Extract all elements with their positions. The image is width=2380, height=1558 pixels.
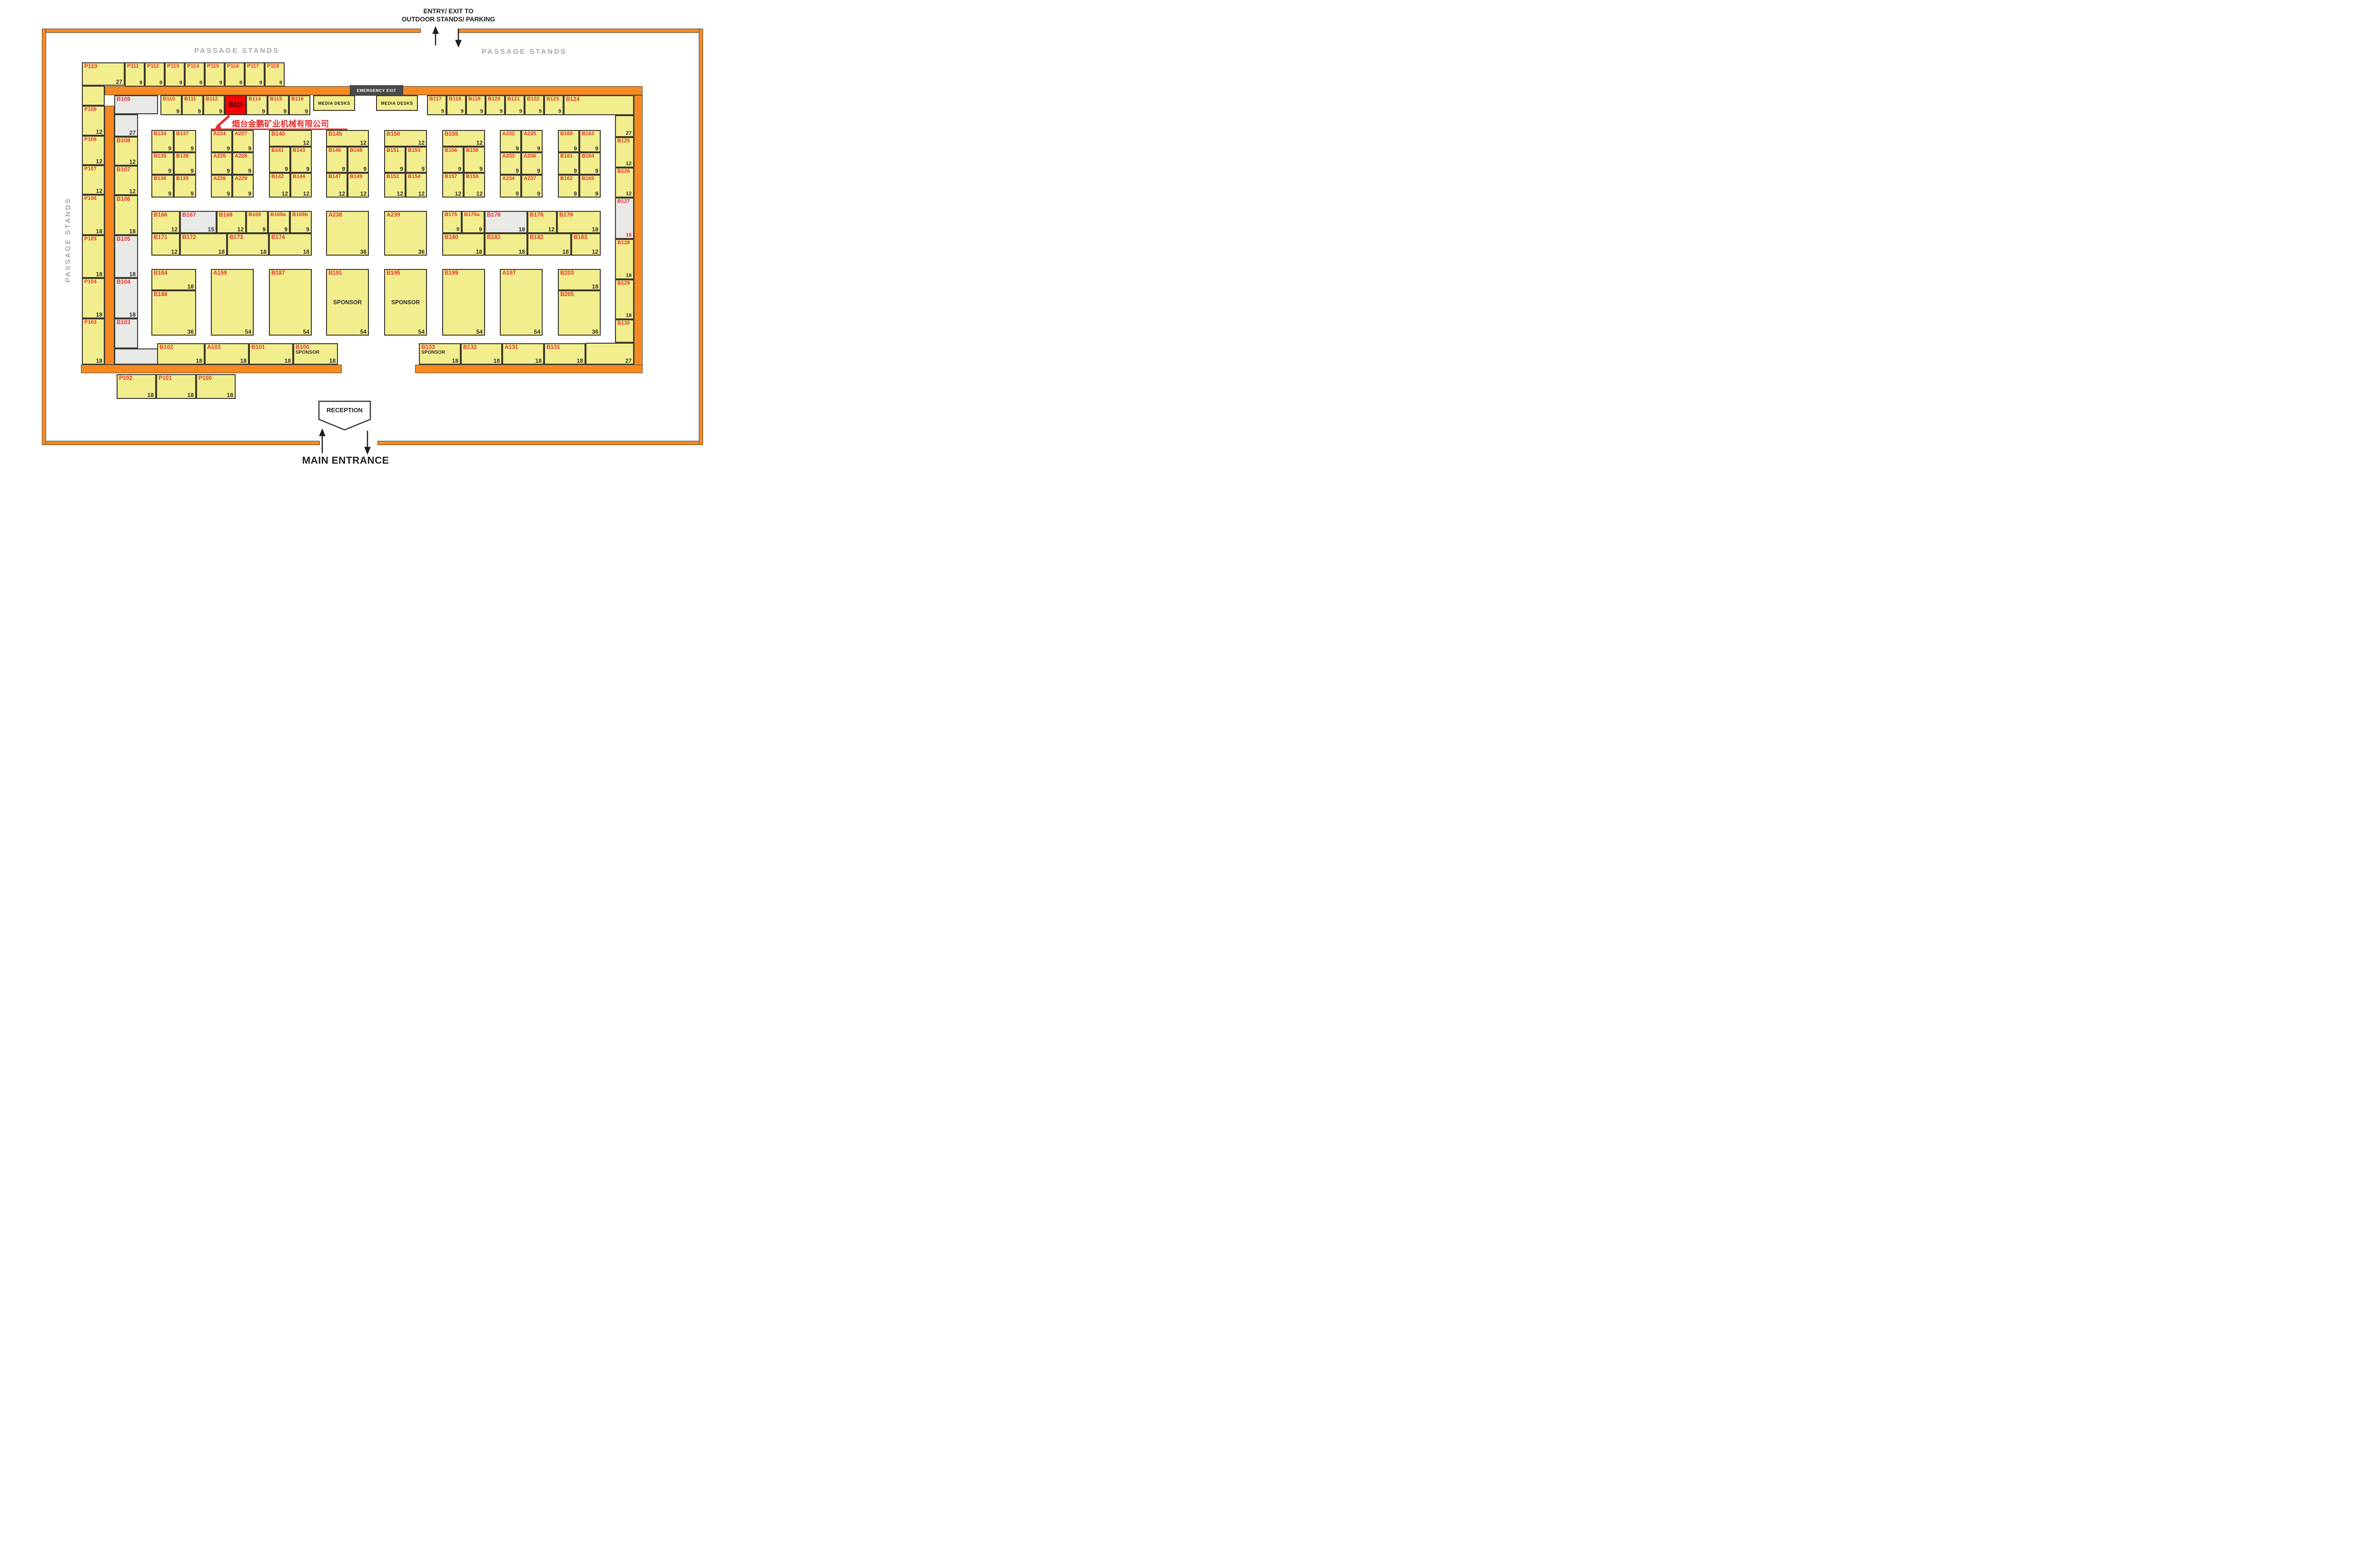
wall-segment bbox=[42, 29, 421, 33]
booth-id: A238 bbox=[328, 212, 342, 218]
booth-b124[interactable]: 27 bbox=[615, 115, 634, 137]
booth-a235[interactable]: A2359 bbox=[521, 130, 543, 152]
booth-size-sqm: 9 bbox=[500, 109, 503, 115]
booth-b130[interactable]: B130 bbox=[615, 319, 634, 343]
booth-b191[interactable]: B191SPONSOR54 bbox=[326, 269, 369, 336]
booth-id: B128 bbox=[617, 240, 630, 246]
booth-id: B125 bbox=[617, 138, 630, 144]
booth-size-sqm: 18 bbox=[519, 226, 525, 233]
booth-a229[interactable]: A2299 bbox=[232, 175, 254, 198]
booth-size-sqm: 27 bbox=[116, 79, 122, 85]
main-entrance-label: MAIN ENTRANCE bbox=[284, 455, 407, 466]
booth-size-sqm: 27 bbox=[626, 130, 632, 137]
booth-size-sqm: 9 bbox=[400, 166, 403, 172]
booth-id: B162 bbox=[560, 176, 573, 182]
booth-id: B153 bbox=[408, 148, 420, 154]
booth-id: B191 bbox=[328, 270, 342, 277]
booth-b109[interactable]: B109 bbox=[114, 95, 158, 114]
booth-b168[interactable]: B16812 bbox=[217, 211, 246, 233]
booth-size-sqm: 9 bbox=[595, 168, 598, 174]
booth-a233[interactable]: A2339 bbox=[500, 152, 521, 175]
booth-id: A239 bbox=[387, 212, 400, 218]
booth-size-sqm: 18 bbox=[96, 357, 102, 364]
booth-b112[interactable]: B1129 bbox=[203, 95, 225, 115]
booth-p108[interactable]: P10812 bbox=[82, 136, 105, 165]
booth-size-sqm: 9 bbox=[516, 168, 519, 174]
booth-id: P101 bbox=[159, 375, 172, 382]
booth-b160[interactable]: B1609 bbox=[558, 130, 579, 152]
booth-b154[interactable]: B15412 bbox=[406, 173, 427, 198]
booth-b150[interactable]: B15012 bbox=[384, 130, 427, 147]
wall-segment bbox=[105, 106, 114, 365]
booth-p114[interactable]: P1149 bbox=[185, 62, 205, 87]
booth-size-sqm: 12 bbox=[282, 190, 288, 197]
booth-b119[interactable]: B1199 bbox=[466, 95, 486, 115]
booth-id: P115 bbox=[207, 63, 219, 69]
booth-size-sqm: 18 bbox=[188, 283, 194, 290]
booth-b166[interactable]: B16612 bbox=[151, 211, 180, 233]
booth-size-sqm: 18 bbox=[196, 357, 202, 364]
booth-a232[interactable]: A2329 bbox=[500, 130, 521, 152]
booth-id: B147 bbox=[328, 174, 341, 180]
booth-size-sqm: 12 bbox=[418, 139, 425, 146]
booth-b187[interactable]: B18754 bbox=[269, 269, 312, 336]
booth-id: B129 bbox=[617, 280, 630, 287]
booth-a228[interactable]: A2289 bbox=[232, 152, 254, 175]
highlighted-booth-label: B113 bbox=[226, 101, 245, 109]
booth-size-sqm: 9 bbox=[227, 190, 230, 197]
booth-b129[interactable]: B12918 bbox=[615, 279, 634, 319]
booth-size-sqm: 9 bbox=[198, 108, 201, 115]
booth-b159[interactable]: B15912 bbox=[464, 173, 485, 198]
wall-segment bbox=[42, 441, 320, 445]
booth-b186[interactable]: B18636 bbox=[151, 290, 196, 336]
booth-id: A234 bbox=[502, 176, 515, 182]
booth-p101[interactable]: P10118 bbox=[156, 374, 196, 399]
booth-id: A102 bbox=[207, 344, 221, 351]
booth-b132[interactable]: B13218 bbox=[461, 343, 502, 365]
booth-b110[interactable]: B1109 bbox=[160, 95, 182, 115]
booth-b167[interactable]: B16715 bbox=[180, 211, 217, 233]
wall-segment bbox=[458, 29, 703, 33]
booth-size-sqm: 9 bbox=[595, 190, 598, 197]
booth-a236[interactable]: A2369 bbox=[521, 152, 543, 175]
booth-size-sqm: 9 bbox=[516, 145, 519, 152]
booth-id: B151 bbox=[387, 148, 399, 154]
booth-id: P102 bbox=[119, 375, 132, 382]
booth-a197[interactable]: A19754 bbox=[500, 269, 543, 336]
booth-b122[interactable]: B1229 bbox=[525, 95, 544, 115]
booth-size-sqm: 9 bbox=[306, 226, 309, 233]
booth-id: B184 bbox=[154, 270, 168, 277]
booth-size-sqm: 9 bbox=[480, 109, 483, 115]
booth-id: A237 bbox=[524, 176, 536, 182]
booth-p118[interactable]: P1189 bbox=[265, 62, 285, 87]
booth-id: B145 bbox=[328, 131, 342, 138]
booth-size-sqm: 12 bbox=[238, 226, 244, 233]
booth-id: A235 bbox=[524, 131, 536, 137]
booth-p115[interactable]: P1159 bbox=[205, 62, 225, 87]
booth-id: B199 bbox=[445, 270, 458, 277]
booth-p107[interactable]: P10712 bbox=[82, 165, 105, 195]
reception-booth[interactable] bbox=[319, 401, 370, 430]
booth-b203[interactable]: B20318 bbox=[558, 269, 601, 290]
booth-b137[interactable]: B1379 bbox=[174, 130, 196, 152]
booth-b116[interactable]: B1169 bbox=[289, 95, 310, 115]
booth-b138[interactable]: B1389 bbox=[174, 152, 196, 175]
booth-size-sqm: 18 bbox=[129, 271, 136, 278]
booth-size-sqm: 9 bbox=[283, 108, 287, 115]
booth-size-sqm: 12 bbox=[171, 226, 178, 233]
booth-b113[interactable]: B113 bbox=[225, 95, 246, 115]
booth-size-sqm: 9 bbox=[306, 166, 309, 172]
booth-a224[interactable]: A2249 bbox=[211, 130, 232, 152]
booth-size-sqm: 12 bbox=[96, 129, 102, 135]
booth-b136[interactable]: B1369 bbox=[151, 175, 174, 198]
booth-b100[interactable]: B100SPONSOR18 bbox=[293, 343, 338, 365]
booth-b142[interactable]: B14212 bbox=[269, 173, 290, 198]
booth-size-sqm: 18 bbox=[260, 248, 267, 255]
booth-id: B114 bbox=[248, 96, 261, 102]
booth-b103[interactable]: B103 bbox=[114, 318, 138, 348]
booth-id: B160 bbox=[560, 131, 573, 137]
booth-size-sqm: 12 bbox=[171, 248, 178, 255]
booth-b107[interactable]: B10712 bbox=[114, 166, 138, 195]
booth-b173[interactable]: B17318 bbox=[227, 233, 269, 256]
booth-id: A226 bbox=[213, 176, 226, 182]
booth-id: B167 bbox=[182, 212, 196, 218]
booth-b157[interactable]: B15712 bbox=[442, 173, 464, 198]
booth-p113[interactable]: P1139 bbox=[165, 62, 185, 87]
entry-exit-line1: ENTRY/ EXIT TO bbox=[367, 8, 529, 16]
booth-id: P103 bbox=[84, 319, 97, 326]
booth-a234[interactable]: A2349 bbox=[500, 175, 521, 198]
booth-id: B110 bbox=[163, 96, 175, 102]
booth-b146[interactable]: B1469 bbox=[326, 147, 347, 173]
booth-id: P105 bbox=[84, 236, 97, 242]
booth-size-sqm: 9 bbox=[262, 108, 265, 115]
booth-size-sqm: 12 bbox=[96, 188, 102, 194]
booth-id: B179 bbox=[559, 212, 573, 218]
booth-size-sqm: 12 bbox=[303, 139, 309, 146]
booth-b127[interactable]: B12718 bbox=[615, 198, 634, 239]
booth-size-sqm: 9 bbox=[537, 145, 540, 152]
booth-b134[interactable]: B1349 bbox=[151, 130, 174, 152]
booth-b126[interactable]: B12612 bbox=[615, 168, 634, 198]
booth-b121[interactable]: B1219 bbox=[505, 95, 525, 115]
booth-a131[interactable]: A13118 bbox=[502, 343, 544, 365]
booth-id: P112 bbox=[147, 63, 159, 69]
booth-id: B169b bbox=[292, 212, 308, 218]
booth-size-sqm: 12 bbox=[129, 159, 136, 165]
booth-b183[interactable]: B18312 bbox=[571, 233, 601, 256]
booth-id: B137 bbox=[176, 131, 188, 137]
booth-b131[interactable]: B13118 bbox=[544, 343, 585, 365]
booth-b139[interactable]: B1399 bbox=[174, 175, 196, 198]
booth-id: P118 bbox=[267, 63, 279, 69]
booth-size-sqm: 18 bbox=[519, 248, 525, 255]
booth-b182[interactable]: B18218 bbox=[527, 233, 571, 256]
booth-b176[interactable]: B17618 bbox=[485, 211, 527, 233]
booth-p109[interactable]: P10912 bbox=[82, 106, 105, 136]
booth-size-sqm: 18 bbox=[96, 311, 102, 318]
booth-b128[interactable]: B12818 bbox=[615, 239, 634, 279]
booth-b102[interactable]: B10218 bbox=[157, 343, 205, 365]
booth-b118[interactable]: B1189 bbox=[446, 95, 466, 115]
booth-id: B117 bbox=[429, 96, 442, 102]
booth-size-sqm: 18 bbox=[476, 248, 482, 255]
booth-id: P117 bbox=[247, 63, 259, 69]
booth-a225[interactable]: A2259 bbox=[211, 152, 232, 175]
booth-a159[interactable]: A15954 bbox=[211, 269, 254, 336]
booth-size-sqm: 36 bbox=[418, 248, 425, 255]
booth-b147[interactable]: B14712 bbox=[326, 173, 347, 198]
booth-b155[interactable]: B15512 bbox=[442, 130, 485, 147]
booth-id: B181 bbox=[487, 234, 501, 241]
booth-id: P104 bbox=[84, 279, 97, 285]
booth-b171[interactable]: B17112 bbox=[151, 233, 180, 256]
booth-b205[interactable]: B20536 bbox=[558, 290, 601, 336]
booth-a227[interactable]: A2279 bbox=[232, 130, 254, 152]
booth-b169[interactable]: B1699 bbox=[246, 211, 268, 233]
booth-size-sqm: 12 bbox=[360, 190, 367, 197]
booth-size-sqm: 54 bbox=[303, 328, 309, 335]
booth-size-sqm: 9 bbox=[574, 145, 577, 152]
booth-a237[interactable]: A2379 bbox=[521, 175, 543, 198]
booth-p103[interactable]: P10318 bbox=[82, 318, 105, 365]
booth-size-sqm: 12 bbox=[455, 190, 461, 197]
booth-size-sqm: 9 bbox=[595, 145, 598, 152]
booth-size-sqm: 12 bbox=[418, 190, 425, 197]
booth-size-sqm: 9 bbox=[159, 80, 162, 86]
booth-id: A225 bbox=[213, 153, 226, 159]
media-desk[interactable]: MEDIA DESKS bbox=[376, 95, 418, 111]
booth-b174[interactable]: B17418 bbox=[269, 233, 312, 256]
booth-a226[interactable]: A2269 bbox=[211, 175, 232, 198]
booth-b111[interactable]: B1119 bbox=[182, 95, 203, 115]
booth-id: B107 bbox=[117, 167, 130, 173]
booth-b144[interactable]: B14412 bbox=[290, 173, 312, 198]
booth-b151[interactable]: B1519 bbox=[384, 147, 406, 173]
booth-b153[interactable]: B1539 bbox=[406, 147, 427, 173]
booth-size-sqm: 18 bbox=[227, 392, 233, 398]
booth-id: B126 bbox=[617, 169, 630, 175]
booth-b149[interactable]: B14912 bbox=[347, 173, 369, 198]
booth-b158[interactable]: B1589 bbox=[464, 147, 485, 173]
booth-b117[interactable]: B1179 bbox=[427, 95, 446, 115]
booth-p110[interactable]: P11027 bbox=[82, 62, 125, 86]
booth-b109[interactable]: 27 bbox=[114, 114, 138, 137]
booth-b141[interactable]: B1419 bbox=[269, 147, 290, 173]
booth-size-sqm: 9 bbox=[179, 80, 182, 86]
booth-id: B166 bbox=[154, 212, 168, 218]
booth-size-sqm: 9 bbox=[168, 190, 171, 197]
booth-size-sqm: 18 bbox=[626, 232, 632, 238]
booth-size-sqm: 9 bbox=[558, 109, 561, 115]
booth-size-sqm: 9 bbox=[199, 80, 202, 86]
booth-size-sqm: 9 bbox=[248, 168, 251, 174]
wall-segment bbox=[634, 95, 643, 373]
booth-b120[interactable]: B1209 bbox=[486, 95, 505, 115]
booth-size-sqm: 9 bbox=[479, 226, 482, 233]
booth-size-sqm: 36 bbox=[360, 248, 367, 255]
booth-b156[interactable]: B1569 bbox=[442, 147, 464, 173]
booth-id: B109 bbox=[117, 96, 130, 103]
booth-id: B180 bbox=[445, 234, 458, 241]
booth-p112[interactable]: P1129 bbox=[145, 62, 165, 87]
booth-p106[interactable]: P10618 bbox=[82, 195, 105, 235]
booth-size-sqm: 18 bbox=[96, 228, 102, 235]
booth-size-sqm: 12 bbox=[397, 190, 403, 197]
booth-p117[interactable]: P1179 bbox=[245, 62, 265, 87]
booth-b169b[interactable]: B169b9 bbox=[290, 211, 312, 233]
booth-b115[interactable]: B1159 bbox=[268, 95, 289, 115]
booth-size-sqm: 12 bbox=[476, 190, 483, 197]
wall-segment bbox=[699, 29, 703, 445]
booth-size-sqm: 18 bbox=[96, 271, 102, 278]
booth-id: B169a bbox=[270, 212, 286, 218]
booth-id: B108 bbox=[117, 138, 130, 144]
booth-b184[interactable]: B18418 bbox=[151, 269, 196, 290]
booth-b143[interactable]: B1439 bbox=[290, 147, 312, 173]
booth-size-sqm: 9 bbox=[342, 166, 345, 172]
booth-id: P109 bbox=[84, 107, 97, 113]
booth-b180[interactable]: B18018 bbox=[442, 233, 485, 256]
booth-id: A159 bbox=[213, 270, 227, 277]
booth-id: A227 bbox=[235, 131, 247, 137]
booth-b161[interactable]: B1619 bbox=[558, 152, 579, 175]
booth-size-sqm: 18 bbox=[218, 248, 225, 255]
booth-id: B148 bbox=[350, 148, 362, 154]
booth-size-sqm: 9 bbox=[479, 166, 483, 172]
media-desk[interactable]: MEDIA DESKS bbox=[313, 95, 355, 111]
booth-id: B112 bbox=[206, 96, 218, 102]
booth-size-sqm: 18 bbox=[129, 311, 136, 318]
booth-b199[interactable]: B19954 bbox=[442, 269, 485, 336]
booth-b181[interactable]: B18118 bbox=[485, 233, 527, 256]
booth-b140[interactable]: B14012 bbox=[269, 130, 312, 147]
booth-b172[interactable]: B17218 bbox=[180, 233, 227, 256]
booth-id: B159 bbox=[466, 174, 478, 180]
booth-size-sqm: 54 bbox=[245, 328, 251, 335]
booth-id: P114 bbox=[187, 63, 199, 69]
booth-size-sqm: 9 bbox=[176, 108, 179, 115]
booth-p100[interactable]: P10018 bbox=[196, 374, 236, 399]
booth-id: P106 bbox=[84, 196, 97, 202]
booth-a239[interactable]: A23936 bbox=[384, 211, 427, 256]
booth-b105[interactable]: B10518 bbox=[114, 235, 138, 278]
booth-id: B173 bbox=[229, 234, 243, 241]
booth-b163[interactable]: B1639 bbox=[579, 130, 601, 152]
booth-id: B136 bbox=[154, 176, 166, 182]
booth-a238[interactable]: A23836 bbox=[326, 211, 369, 256]
booth-p102[interactable]: P10218 bbox=[117, 374, 156, 399]
booth-p116[interactable]: P1169 bbox=[225, 62, 245, 87]
booth-size-sqm: 9 bbox=[516, 190, 519, 197]
booth-b175[interactable]: B1759 bbox=[442, 211, 462, 233]
booth-b164[interactable]: B1649 bbox=[579, 152, 601, 175]
booth-size-sqm: 12 bbox=[96, 158, 102, 165]
media-desk-label: MEDIA DESKS bbox=[314, 101, 354, 106]
booth-size-sqm: 12 bbox=[476, 139, 483, 146]
booth-p110[interactable] bbox=[82, 86, 105, 106]
booth-size-sqm: 9 bbox=[539, 109, 542, 115]
booth-b108[interactable]: B10812 bbox=[114, 137, 138, 166]
booth-id: B121 bbox=[507, 96, 520, 102]
booth-id: A232 bbox=[502, 131, 515, 137]
booth-id: B168 bbox=[219, 212, 233, 218]
booth-size-sqm: 9 bbox=[190, 145, 194, 152]
booth-b123[interactable]: B1239 bbox=[544, 95, 564, 115]
booth-b133[interactable]: B133SPONSOR18 bbox=[419, 343, 461, 365]
booth-size-sqm: 18 bbox=[592, 283, 598, 290]
booth-id: B195 bbox=[387, 270, 400, 277]
booth-b195[interactable]: B195SPONSOR54 bbox=[384, 269, 427, 336]
booth-id: B158 bbox=[466, 148, 478, 154]
booth-size-sqm: 9 bbox=[456, 227, 459, 233]
booth-b175a[interactable]: B175a9 bbox=[462, 211, 485, 233]
booth-id: B111 bbox=[184, 96, 196, 102]
booth-b162[interactable]: B1629 bbox=[558, 175, 579, 198]
booth-b152[interactable]: B15212 bbox=[384, 173, 406, 198]
booth-id: B178 bbox=[530, 212, 544, 218]
booth-b178[interactable]: B17812 bbox=[527, 211, 557, 233]
booth-id: B171 bbox=[154, 234, 168, 241]
booth-id: B156 bbox=[445, 148, 457, 154]
entry-exit-line2: OUTDOOR STANDS/ PARKING bbox=[367, 16, 529, 24]
booth-b130[interactable]: 27 bbox=[585, 343, 634, 365]
booth-id: B175 bbox=[445, 212, 457, 218]
booth-b104[interactable]: B10418 bbox=[114, 278, 138, 318]
booth-b124[interactable]: B124 bbox=[564, 95, 634, 115]
booth-b165[interactable]: B1659 bbox=[579, 175, 601, 198]
booth-size-sqm: 18 bbox=[494, 357, 500, 364]
booth-b125[interactable]: B12512 bbox=[615, 137, 634, 168]
booth-size-sqm: 9 bbox=[537, 190, 540, 197]
booth-id: B172 bbox=[182, 234, 196, 241]
booth-size-sqm: 12 bbox=[626, 161, 632, 167]
booth-size-sqm: 18 bbox=[285, 357, 291, 364]
booth-size-sqm: 27 bbox=[129, 129, 136, 136]
booth-b114[interactable]: B1149 bbox=[246, 95, 268, 115]
booth-size-sqm: 9 bbox=[248, 145, 251, 152]
booth-p105[interactable]: P10518 bbox=[82, 235, 105, 278]
booth-id: B174 bbox=[271, 234, 285, 241]
booth-size-sqm: 9 bbox=[363, 166, 367, 172]
booth-b145[interactable]: B14512 bbox=[326, 130, 369, 147]
main-entrance-arrows bbox=[320, 430, 370, 453]
booth-b148[interactable]: B1489 bbox=[347, 147, 369, 173]
booth-id: A131 bbox=[505, 344, 518, 351]
booth-b106[interactable]: B10618 bbox=[114, 195, 138, 235]
booth-id: B182 bbox=[530, 234, 544, 241]
booth-b135[interactable]: B1359 bbox=[151, 152, 174, 175]
booth-id: B149 bbox=[350, 174, 362, 180]
booth-p104[interactable]: P10418 bbox=[82, 278, 105, 318]
booth-b179[interactable]: B17918 bbox=[557, 211, 601, 233]
booth-a102[interactable]: A10218 bbox=[205, 343, 249, 365]
booth-size-sqm: 18 bbox=[452, 357, 458, 364]
booth-id: B176 bbox=[487, 212, 501, 218]
booth-b169a[interactable]: B169a9 bbox=[268, 211, 290, 233]
highlight-company-name: 烟台金鹏矿业机械有限公司 bbox=[232, 117, 356, 129]
booth-size-sqm: 12 bbox=[360, 139, 367, 146]
booth-id: B130 bbox=[617, 320, 630, 327]
booth-p111[interactable]: P1119 bbox=[125, 62, 145, 87]
booth-id: B123 bbox=[546, 96, 559, 102]
booth-id: B155 bbox=[445, 131, 458, 138]
booth-b101[interactable]: B10118 bbox=[249, 343, 293, 365]
